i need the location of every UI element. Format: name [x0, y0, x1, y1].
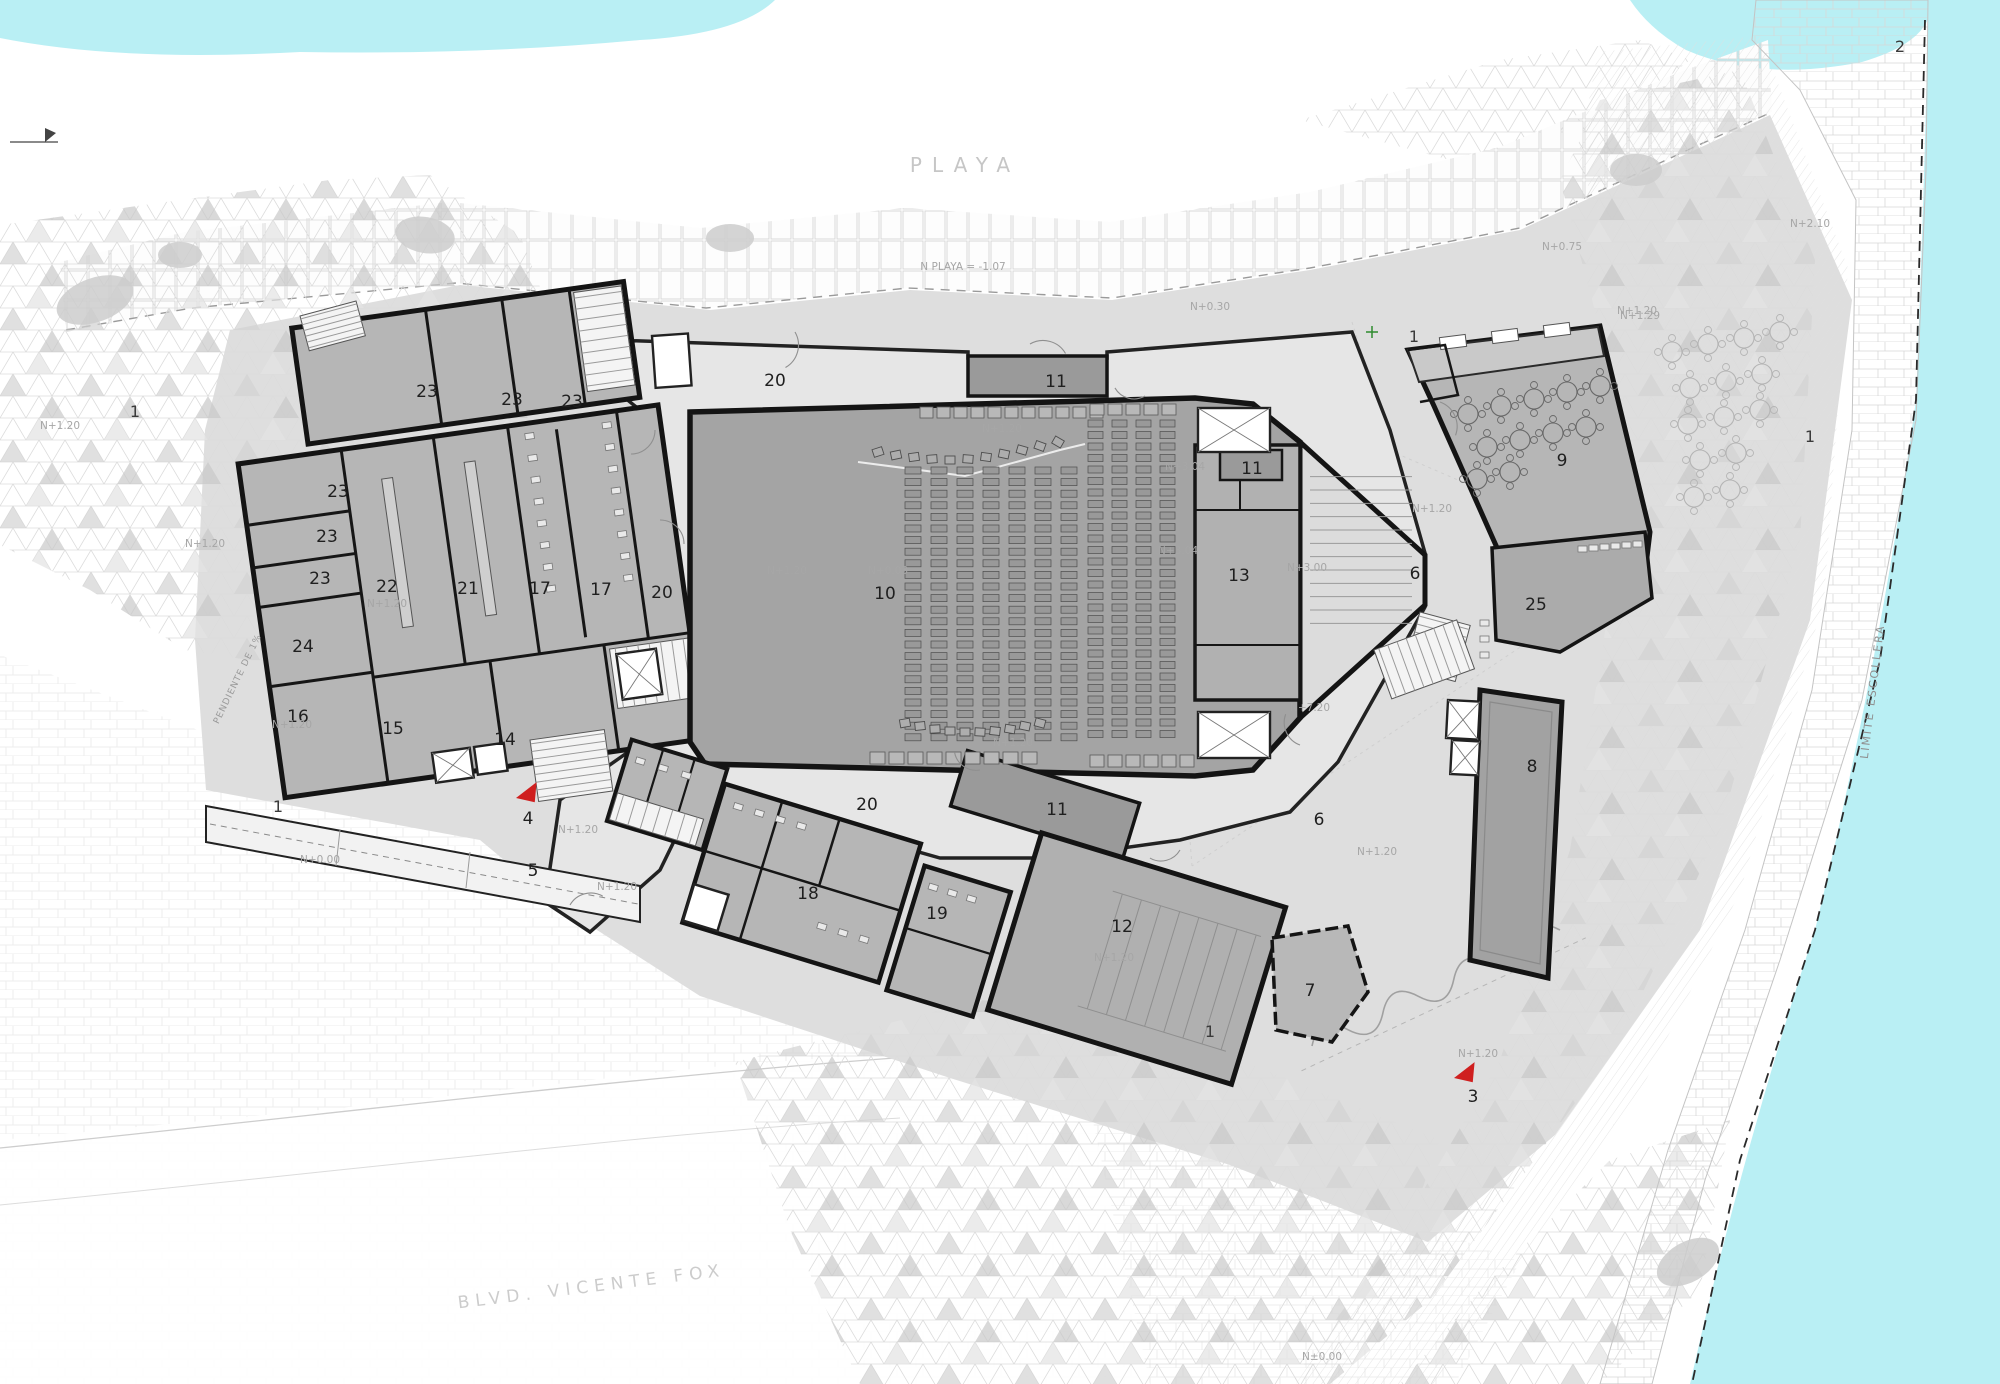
auditorium-seat	[983, 479, 999, 486]
auditorium-seat	[931, 606, 947, 613]
elevation-label: N+1.20	[767, 565, 807, 577]
room-number-label: 5	[528, 861, 539, 881]
auditorium-seat	[983, 711, 999, 718]
auditorium-seat	[1088, 535, 1103, 542]
auditorium-seat	[931, 711, 947, 718]
auditorium-seat	[905, 734, 921, 741]
shaft	[432, 748, 474, 783]
auditorium-seat	[1088, 616, 1103, 623]
auditorium-seat	[1160, 685, 1175, 692]
elevation-label: N+3.04	[1158, 545, 1198, 557]
auditorium-seat	[1136, 639, 1151, 646]
auditorium-seat	[1136, 535, 1151, 542]
loose-chair	[963, 455, 974, 464]
room-number-label: 11	[1046, 800, 1068, 820]
auditorium-seat	[1112, 501, 1127, 508]
box-seat	[870, 752, 885, 764]
auditorium-seat	[1160, 535, 1175, 542]
auditorium-seat	[1035, 653, 1051, 660]
auditorium-seat	[1160, 570, 1175, 577]
box-seat	[1056, 407, 1069, 418]
auditorium-seat	[1112, 478, 1127, 485]
auditorium-seat	[1160, 512, 1175, 519]
auditorium-seat	[983, 490, 999, 497]
box-seat	[988, 407, 1001, 418]
elevation-label: N+1.20	[993, 737, 1033, 749]
auditorium-seat	[1009, 479, 1025, 486]
auditorium-seat	[957, 490, 973, 497]
room-number-label: 3	[1468, 1087, 1479, 1107]
auditorium-seat	[1009, 467, 1025, 474]
fixture	[1622, 542, 1631, 548]
fixture	[1611, 543, 1620, 549]
auditorium-seat	[1035, 571, 1051, 578]
auditorium-seat	[1136, 570, 1151, 577]
shaft	[1198, 408, 1270, 452]
fixture	[611, 487, 621, 494]
auditorium-seat	[1088, 627, 1103, 634]
auditorium-seat	[1009, 537, 1025, 544]
auditorium-seat	[1112, 639, 1127, 646]
auditorium-seat	[1088, 455, 1103, 462]
auditorium-seat	[1088, 581, 1103, 588]
auditorium-seat	[957, 606, 973, 613]
auditorium-seat	[1136, 501, 1151, 508]
box-seat	[971, 407, 984, 418]
room-number-label: 9	[1557, 451, 1568, 471]
auditorium-seat	[1035, 618, 1051, 625]
shaft	[652, 333, 692, 387]
auditorium-seat	[1160, 489, 1175, 496]
auditorium-seat	[1088, 420, 1103, 427]
auditorium-seat	[1009, 641, 1025, 648]
auditorium-seat	[1112, 627, 1127, 634]
auditorium-seat	[1088, 685, 1103, 692]
north-flag-icon	[45, 128, 56, 142]
auditorium-seat	[1009, 618, 1025, 625]
auditorium-seat	[1112, 570, 1127, 577]
loose-chair	[927, 455, 938, 464]
box-seat	[1126, 755, 1140, 767]
auditorium-seat	[1112, 558, 1127, 565]
auditorium-seat	[1009, 711, 1025, 718]
room-number-label: 13	[1228, 566, 1250, 586]
auditorium-seat	[905, 664, 921, 671]
auditorium-seat	[1035, 525, 1051, 532]
box-seat	[889, 752, 904, 764]
auditorium-seat	[905, 548, 921, 555]
auditorium-seat	[1160, 604, 1175, 611]
auditorium-seat	[983, 583, 999, 590]
stair	[530, 730, 613, 802]
auditorium-seat	[1061, 722, 1077, 729]
auditorium-seat	[957, 548, 973, 555]
auditorium-seat	[983, 676, 999, 683]
room-number-label: 23	[327, 482, 349, 502]
auditorium-seat	[957, 664, 973, 671]
loose-chair	[975, 728, 985, 737]
auditorium-seat	[1061, 525, 1077, 532]
auditorium-seat	[1035, 513, 1051, 520]
auditorium-seat	[1035, 687, 1051, 694]
fixture	[531, 476, 541, 483]
auditorium-seat	[1061, 537, 1077, 544]
box-seat	[984, 752, 999, 764]
auditorium-seat	[1061, 513, 1077, 520]
loose-chair	[908, 452, 919, 461]
auditorium-seat	[1136, 512, 1151, 519]
auditorium-seat	[1136, 650, 1151, 657]
fixture	[540, 541, 550, 548]
auditorium-seat	[1112, 420, 1127, 427]
auditorium-seat	[905, 687, 921, 694]
auditorium-seat	[957, 537, 973, 544]
room-number-label: 23	[416, 382, 438, 402]
auditorium-seat	[1088, 604, 1103, 611]
auditorium-seat	[1009, 571, 1025, 578]
auditorium-seat	[957, 467, 973, 474]
room-number-label: 23	[309, 569, 331, 589]
auditorium-seat	[957, 583, 973, 590]
auditorium-seat	[1136, 696, 1151, 703]
auditorium-seat	[905, 618, 921, 625]
auditorium-seat	[931, 513, 947, 520]
elevation-label: N+1.20	[185, 538, 225, 550]
auditorium-seat	[931, 537, 947, 544]
auditorium-seat	[983, 606, 999, 613]
loose-chair	[998, 449, 1009, 459]
room-number-label: 24	[292, 637, 314, 657]
box-seat	[1162, 755, 1176, 767]
auditorium-seat	[957, 479, 973, 486]
street-name-label: PLAYA	[910, 153, 1020, 177]
room-number-label: 17	[590, 580, 612, 600]
room-number-label: 10	[874, 584, 896, 604]
architectural-site-plan: 2323232323232422211717161514202020101111…	[0, 0, 2000, 1384]
auditorium-seat	[905, 629, 921, 636]
auditorium-seat	[1009, 490, 1025, 497]
room-number-label: 7	[1305, 981, 1316, 1001]
auditorium-seat	[905, 502, 921, 509]
fixture	[614, 509, 624, 516]
auditorium-seat	[1160, 616, 1175, 623]
auditorium-seat	[1136, 432, 1151, 439]
box-seat	[1005, 407, 1018, 418]
auditorium-seat	[1088, 639, 1103, 646]
auditorium-seat	[957, 525, 973, 532]
box-seat	[1022, 752, 1037, 764]
zone-number-label: 1	[273, 797, 283, 816]
auditorium-seat	[1035, 479, 1051, 486]
box-seat	[937, 407, 950, 418]
auditorium-seat	[1009, 606, 1025, 613]
auditorium-seat	[1009, 595, 1025, 602]
elevation-label: N+2.10	[1790, 218, 1830, 230]
auditorium-seat	[1160, 719, 1175, 726]
auditorium-seat	[1112, 650, 1127, 657]
box-seat	[1144, 755, 1158, 767]
auditorium-seat	[983, 571, 999, 578]
auditorium-seat	[1035, 734, 1051, 741]
auditorium-seat	[1088, 501, 1103, 508]
auditorium-seat	[1035, 629, 1051, 636]
box-seat	[1108, 404, 1122, 415]
auditorium-seat	[1035, 606, 1051, 613]
dune-blob	[1610, 154, 1662, 186]
shaft	[1450, 740, 1480, 775]
auditorium-seat	[1061, 734, 1077, 741]
auditorium-seat	[1136, 673, 1151, 680]
auditorium-seat	[1009, 676, 1025, 683]
auditorium-seat	[1009, 583, 1025, 590]
loose-chair	[930, 725, 940, 734]
auditorium-seat	[905, 676, 921, 683]
auditorium-seat	[1112, 581, 1127, 588]
elevation-label: N+1.20	[558, 824, 598, 836]
auditorium-seat	[1136, 708, 1151, 715]
auditorium-seat	[1088, 443, 1103, 450]
auditorium-seat	[931, 571, 947, 578]
auditorium-seat	[1061, 699, 1077, 706]
room-number-label: 14	[494, 730, 516, 750]
auditorium-seat	[1136, 581, 1151, 588]
auditorium-seat	[983, 560, 999, 567]
loose-chair	[990, 726, 1001, 735]
auditorium-seat	[1088, 512, 1103, 519]
elevation-label: N+0.30	[1190, 301, 1230, 313]
auditorium-seat	[983, 502, 999, 509]
fixture	[543, 563, 553, 570]
auditorium-seat	[1112, 673, 1127, 680]
auditorium-seat	[957, 571, 973, 578]
auditorium-seat	[1061, 664, 1077, 671]
fixture	[1480, 636, 1489, 642]
auditorium-seat	[905, 653, 921, 660]
elevation-label: N+3.00	[1287, 562, 1327, 574]
auditorium-seat	[1088, 432, 1103, 439]
auditorium-seat	[1061, 502, 1077, 509]
auditorium-seat	[1061, 629, 1077, 636]
loose-chair	[1019, 721, 1030, 731]
kitchen-counter	[1439, 334, 1466, 349]
auditorium-seat	[1035, 583, 1051, 590]
box-seat	[1108, 755, 1122, 767]
auditorium-seat	[1035, 548, 1051, 555]
auditorium-seat	[1136, 662, 1151, 669]
auditorium-seat	[905, 479, 921, 486]
auditorium-seat	[1061, 606, 1077, 613]
room-number-label: 25	[1525, 595, 1547, 615]
auditorium-seat	[1035, 664, 1051, 671]
room-number-label: 20	[651, 583, 673, 603]
auditorium-seat	[1112, 719, 1127, 726]
auditorium-seat	[931, 502, 947, 509]
auditorium-seat	[1088, 696, 1103, 703]
room-number-label: 15	[382, 719, 404, 739]
box-seat	[1022, 407, 1035, 418]
auditorium-seat	[1009, 664, 1025, 671]
zone-number-label: 1	[130, 402, 140, 421]
auditorium-seat	[1112, 604, 1127, 611]
auditorium-seat	[1035, 537, 1051, 544]
auditorium-seat	[1112, 547, 1127, 554]
loose-chair	[915, 721, 926, 730]
dune-blob	[158, 242, 202, 268]
auditorium-seat	[1160, 627, 1175, 634]
auditorium-seat	[1088, 593, 1103, 600]
auditorium-seat	[931, 560, 947, 567]
elevation-label: N+1.20	[1617, 305, 1657, 317]
auditorium-seat	[905, 467, 921, 474]
auditorium-seat	[931, 653, 947, 660]
auditorium-seat	[1009, 502, 1025, 509]
box-seat	[1126, 404, 1140, 415]
auditorium-seat	[1088, 547, 1103, 554]
auditorium-seat	[1088, 489, 1103, 496]
auditorium-seat	[1160, 593, 1175, 600]
shaft-box	[652, 333, 692, 387]
auditorium-seat	[1136, 455, 1151, 462]
auditorium-seat	[1061, 583, 1077, 590]
auditorium-seat	[1112, 708, 1127, 715]
box-seat	[1162, 404, 1176, 415]
auditorium-seat	[957, 676, 973, 683]
fixture	[1480, 620, 1489, 626]
room-number-label: 20	[856, 795, 878, 815]
elevation-label: N+0.00	[300, 854, 340, 866]
auditorium-seat	[1112, 685, 1127, 692]
auditorium-seat	[1061, 595, 1077, 602]
shaft	[1198, 712, 1270, 758]
fixture	[623, 574, 633, 581]
fixture	[528, 454, 538, 461]
gallery-building	[1470, 690, 1562, 978]
room-number-label: 12	[1111, 917, 1133, 937]
auditorium-seat	[1088, 558, 1103, 565]
auditorium-seat	[1136, 604, 1151, 611]
room-number-label: 19	[926, 904, 948, 924]
shaft	[1446, 700, 1480, 740]
auditorium-seat	[1061, 618, 1077, 625]
auditorium-seat	[1009, 629, 1025, 636]
auditorium-seat	[1136, 731, 1151, 738]
room-number-label: 22	[376, 577, 398, 597]
auditorium-seat	[1061, 560, 1077, 567]
auditorium-seat	[983, 525, 999, 532]
box-seat	[1039, 407, 1052, 418]
elevation-label: N+1.20	[1458, 1048, 1498, 1060]
loose-chair	[945, 456, 955, 464]
auditorium-seat	[1136, 489, 1151, 496]
auditorium-seat	[1136, 420, 1151, 427]
auditorium-seat	[931, 664, 947, 671]
auditorium-seat	[983, 641, 999, 648]
auditorium-seat	[957, 653, 973, 660]
auditorium-seat	[1112, 432, 1127, 439]
loose-chair	[890, 450, 901, 460]
dune-blob	[706, 224, 754, 252]
fixture	[1578, 546, 1587, 552]
auditorium-seat	[931, 595, 947, 602]
loose-chair	[945, 727, 955, 735]
box-seat	[927, 752, 942, 764]
elevation-label: N+1.20	[1357, 846, 1397, 858]
auditorium-seat	[957, 629, 973, 636]
room-number-label: 23	[501, 390, 523, 410]
auditorium-seat	[1112, 731, 1127, 738]
auditorium-seat	[905, 641, 921, 648]
auditorium-seat	[1009, 560, 1025, 567]
auditorium-seat	[1088, 650, 1103, 657]
auditorium-seat	[931, 676, 947, 683]
room-number-label: 4	[523, 809, 534, 829]
auditorium-seat	[905, 583, 921, 590]
auditorium-seat	[983, 513, 999, 520]
auditorium-seat	[1035, 711, 1051, 718]
elevation-label: N+1.20	[982, 423, 1022, 435]
auditorium-seat	[957, 502, 973, 509]
room-number-label: 6	[1410, 564, 1421, 584]
auditorium-seat	[1088, 731, 1103, 738]
auditorium-seat	[1035, 699, 1051, 706]
auditorium-seat	[931, 490, 947, 497]
elevation-label: N+1.20	[1412, 503, 1452, 515]
auditorium-seat	[905, 606, 921, 613]
auditorium-seat	[957, 687, 973, 694]
auditorium-seat	[1061, 641, 1077, 648]
auditorium-seat	[1061, 711, 1077, 718]
zone-number-label: 1	[1205, 1022, 1215, 1041]
room-number-label: 21	[457, 579, 479, 599]
auditorium-seat	[1136, 524, 1151, 531]
auditorium-seat	[1136, 478, 1151, 485]
auditorium-seat	[1136, 558, 1151, 565]
auditorium-seat	[1061, 687, 1077, 694]
elevation-label: N+1.20	[272, 719, 312, 731]
fixture	[534, 498, 544, 505]
kitchen-counter	[1543, 322, 1570, 337]
box-seat	[1144, 404, 1158, 415]
auditorium-seat	[1112, 443, 1127, 450]
auditorium-seat	[905, 595, 921, 602]
auditorium-seat	[931, 629, 947, 636]
auditorium-seat	[1160, 731, 1175, 738]
elevation-label: N+1.20	[1094, 952, 1134, 964]
auditorium-seat	[1009, 699, 1025, 706]
auditorium-seat	[1160, 650, 1175, 657]
auditorium-seat	[1061, 571, 1077, 578]
fixture	[525, 433, 535, 440]
auditorium-seat	[931, 687, 947, 694]
auditorium-seat	[1160, 432, 1175, 439]
loose-chair	[980, 452, 991, 461]
auditorium-seat	[983, 629, 999, 636]
auditorium-seat	[1009, 653, 1025, 660]
elevation-label: N±0.00	[1302, 1351, 1342, 1363]
vestibule-11-north	[968, 356, 1107, 396]
auditorium-seat	[1088, 673, 1103, 680]
auditorium-seat	[1009, 513, 1025, 520]
auditorium-seat	[1061, 676, 1077, 683]
box-seat	[1090, 755, 1104, 767]
auditorium-seat	[1160, 708, 1175, 715]
site-plan-svg: 2323232323232422211717161514202020101111…	[0, 0, 2000, 1384]
auditorium-seat	[1088, 570, 1103, 577]
loose-chair	[899, 718, 910, 728]
elevation-label: N+3.04	[1165, 461, 1205, 473]
auditorium-seat	[1160, 501, 1175, 508]
auditorium-seat	[983, 618, 999, 625]
